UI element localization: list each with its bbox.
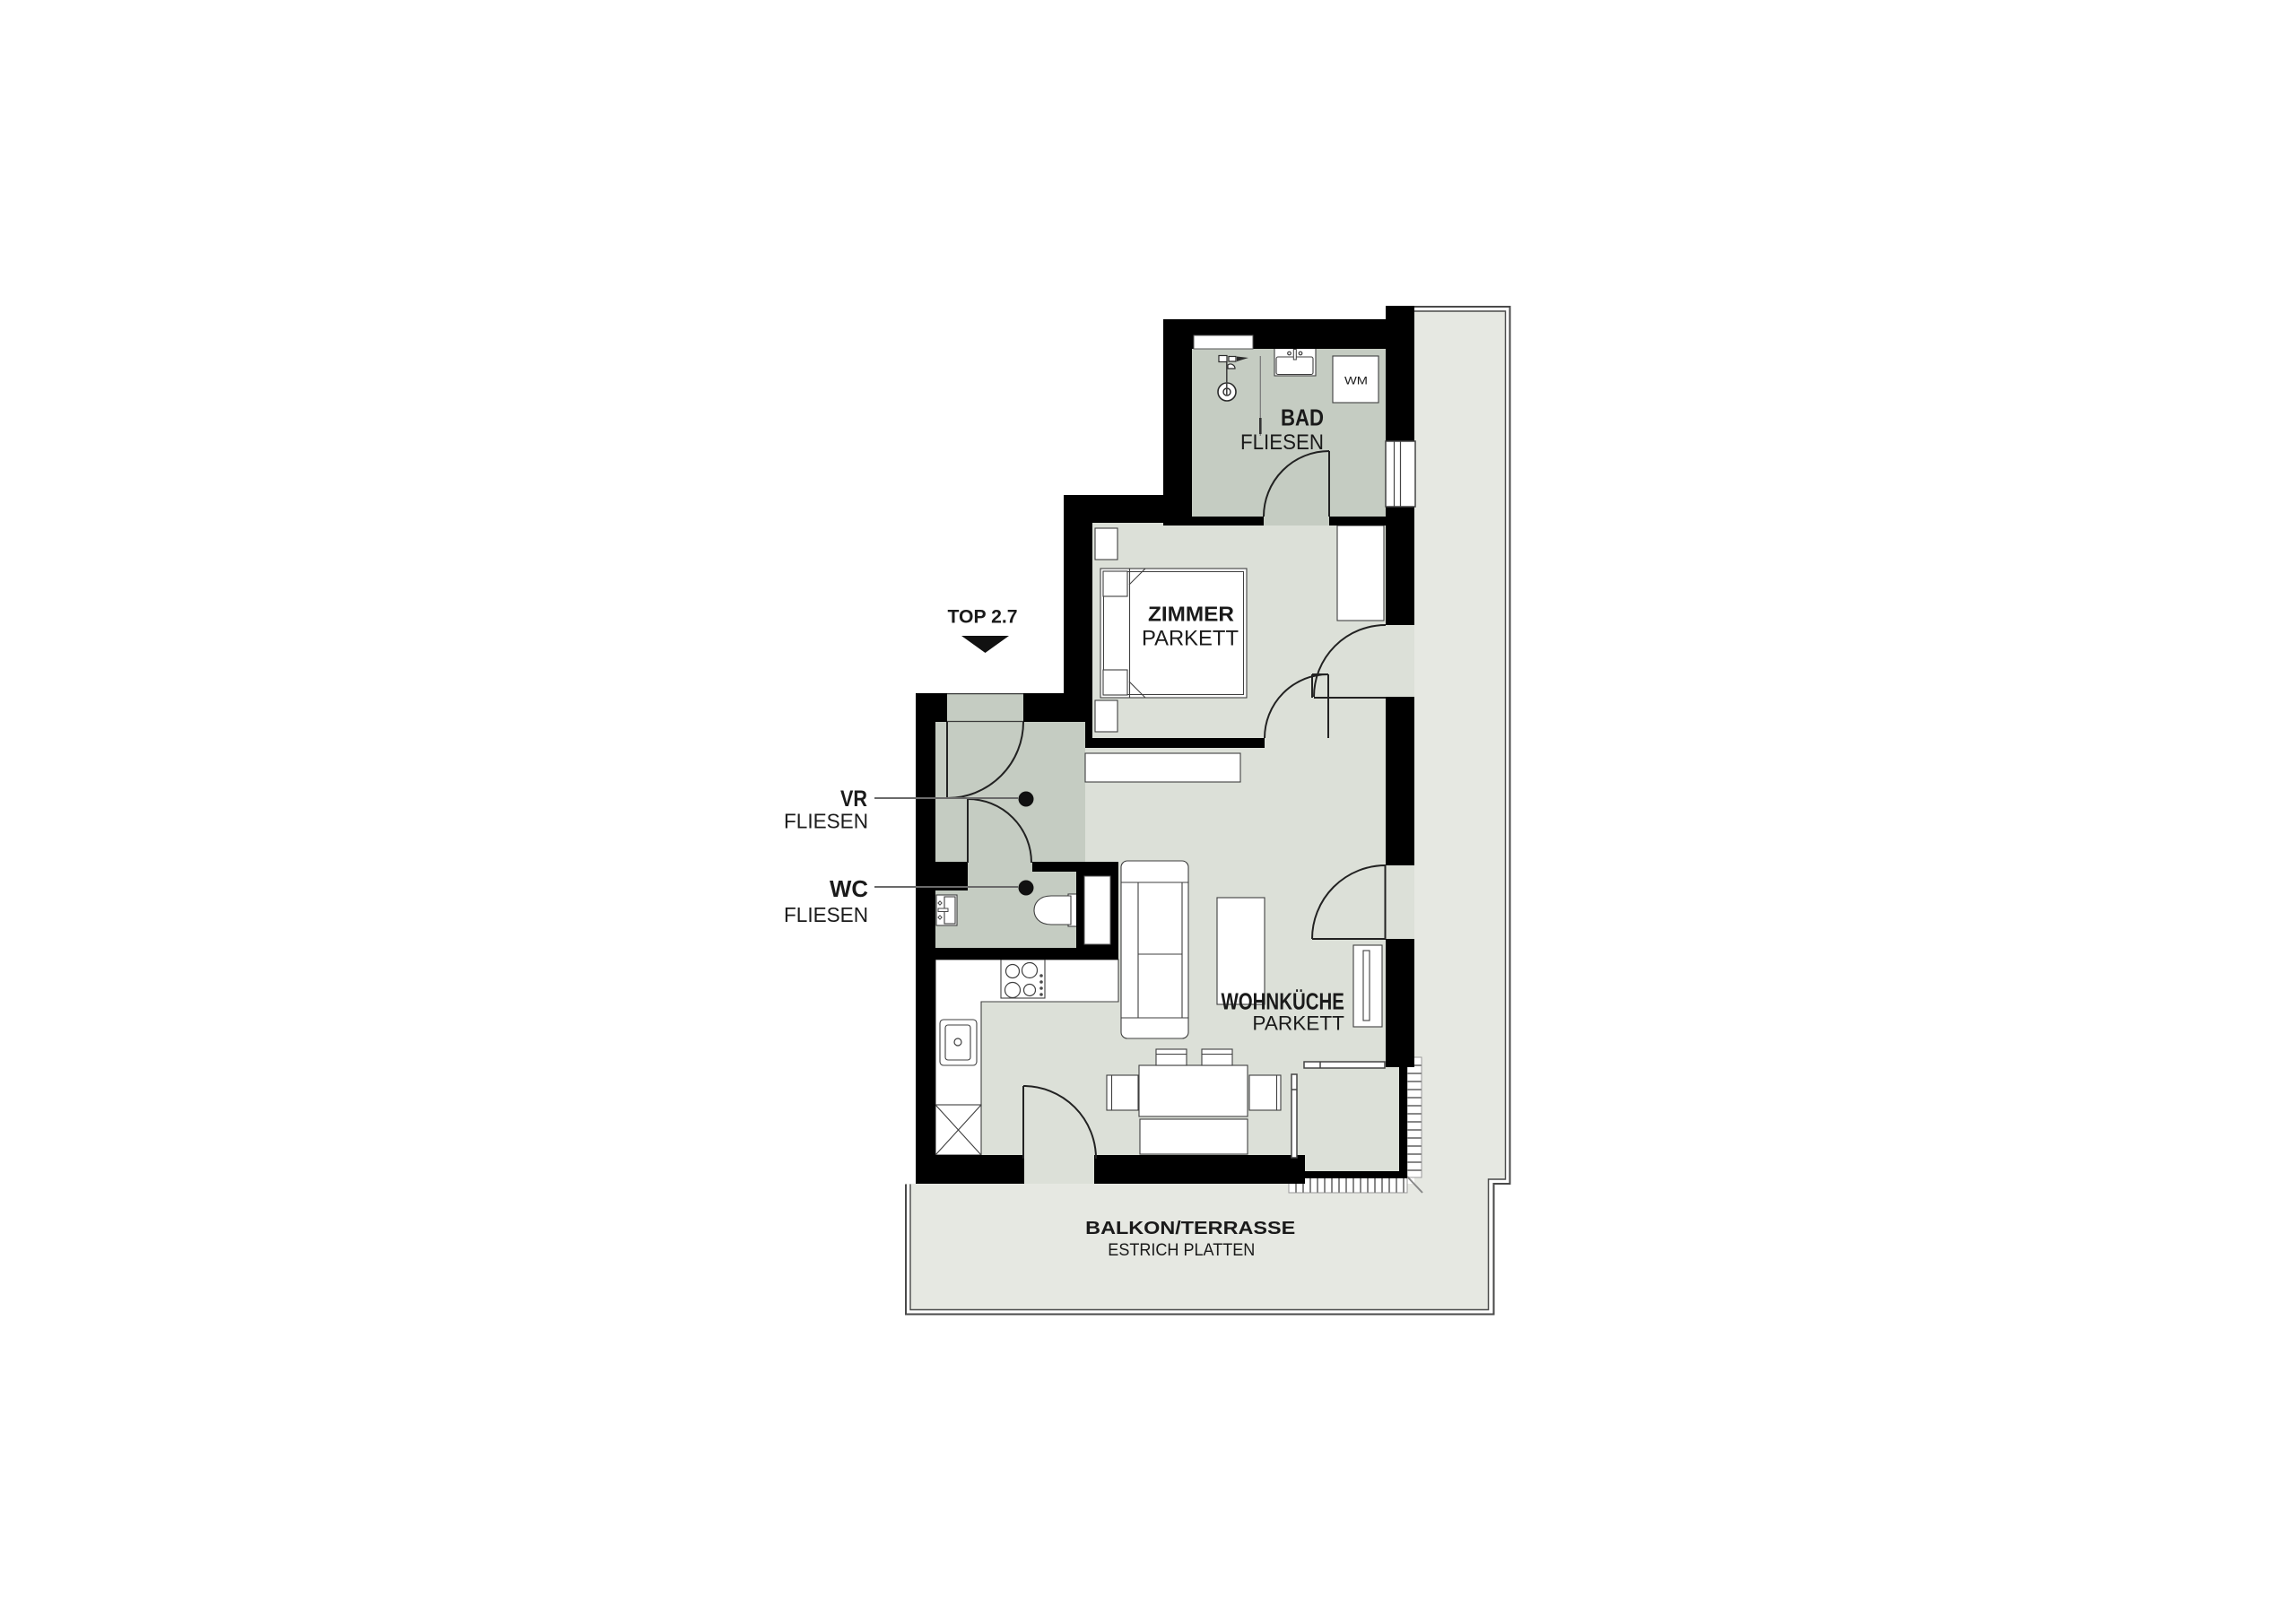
svg-text:FLIESEN: FLIESEN xyxy=(784,903,868,926)
svg-text:WOHNKÜCHE: WOHNKÜCHE xyxy=(1221,988,1344,1015)
svg-text:BALKON/TERRASSE: BALKON/TERRASSE xyxy=(1085,1218,1295,1238)
svg-text:BAD: BAD xyxy=(1281,406,1324,431)
svg-text:WC: WC xyxy=(830,875,868,902)
svg-text:FLIESEN: FLIESEN xyxy=(784,810,868,833)
svg-text:WM: WM xyxy=(1344,375,1368,387)
svg-text:VR: VR xyxy=(840,786,867,812)
svg-text:TOP 2.7: TOP 2.7 xyxy=(948,606,1018,628)
svg-text:PARKETT: PARKETT xyxy=(1252,1012,1344,1035)
svg-text:FLIESEN: FLIESEN xyxy=(1240,430,1324,455)
svg-text:PARKETT: PARKETT xyxy=(1142,627,1239,651)
svg-text:ESTRICH PLATTEN: ESTRICH PLATTEN xyxy=(1108,1241,1255,1260)
svg-text:ZIMMER: ZIMMER xyxy=(1148,602,1234,625)
